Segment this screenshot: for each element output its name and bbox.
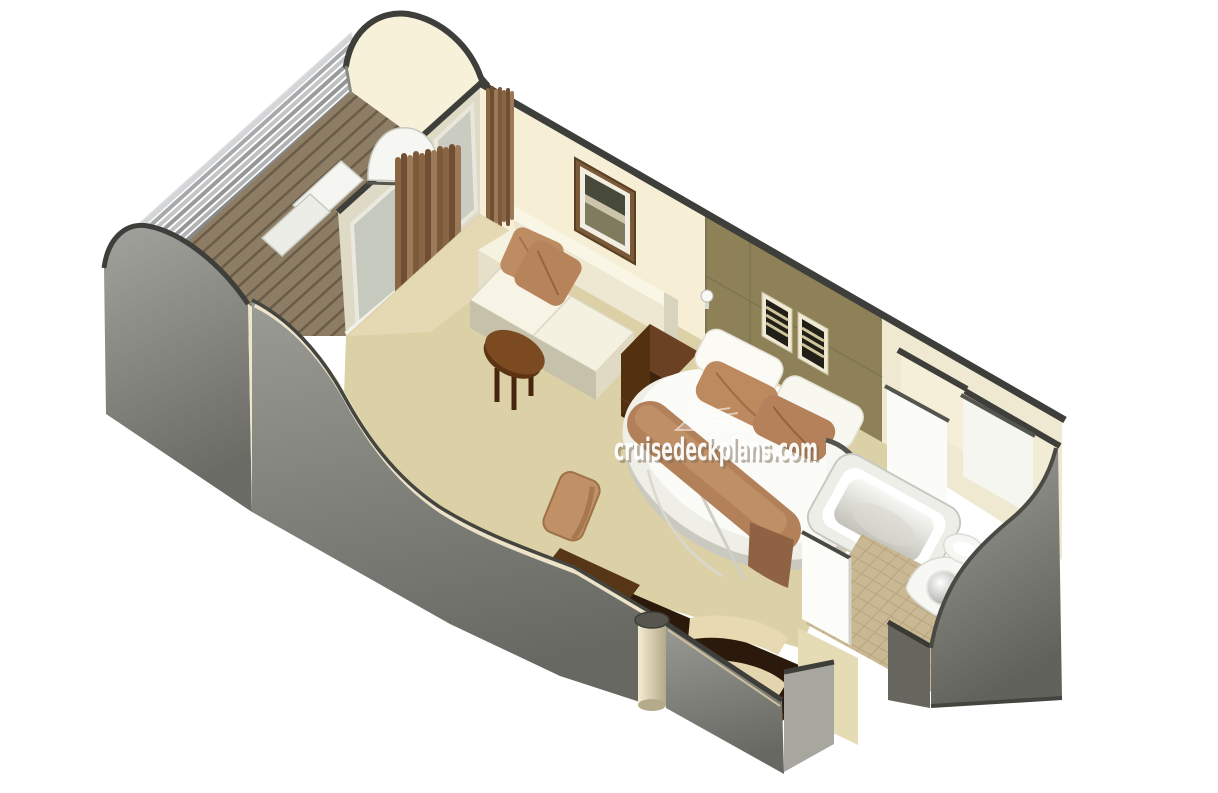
watermark-text: cruisedeckplans.com <box>614 432 818 468</box>
floorplan-stage: cruisedeckplans.com cruisedeckplans.com <box>0 0 1218 793</box>
suite-cutaway-rendering: cruisedeckplans.com cruisedeckplans.com <box>0 0 1218 793</box>
support-column <box>635 612 669 711</box>
